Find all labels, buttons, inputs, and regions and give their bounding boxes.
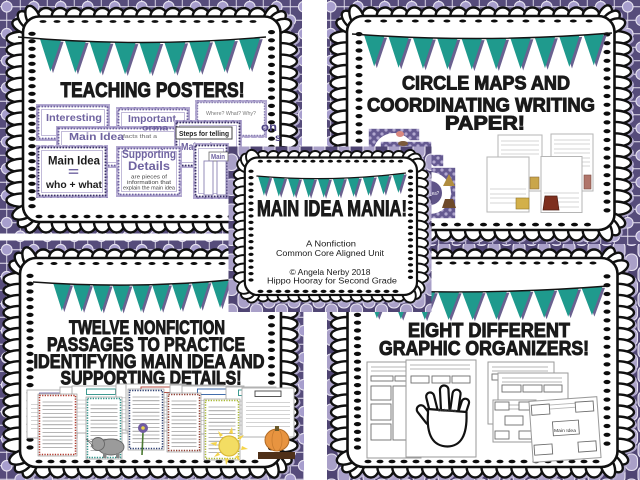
svg-text:CIRCLE MAPS AND: CIRCLE MAPS AND <box>402 73 570 95</box>
svg-text:Main Idea: Main Idea <box>554 428 577 433</box>
svg-text:explain the main idea: explain the main idea <box>123 186 176 192</box>
svg-text:TEACHING POSTERS!: TEACHING POSTERS! <box>61 79 245 102</box>
svg-text:orma: orma <box>142 123 168 133</box>
svg-text:Common Core Aligned Unit: Common Core Aligned Unit <box>276 249 385 258</box>
svg-text:MAIN IDEA MANIA!: MAIN IDEA MANIA! <box>257 196 407 221</box>
svg-text:Interesting: Interesting <box>46 112 102 124</box>
svg-text:Where? What? Why?: Where? What? Why? <box>206 111 256 117</box>
svg-text:A Nonfiction: A Nonfiction <box>306 240 356 249</box>
svg-text:Main: Main <box>211 154 225 161</box>
svg-text:on: on <box>261 120 277 134</box>
svg-text:GRAPHIC ORGANIZERS!: GRAPHIC ORGANIZERS! <box>379 338 589 360</box>
svg-text:PAPER!: PAPER! <box>445 113 525 135</box>
svg-text:who + what: who + what <box>45 179 102 191</box>
svg-text:Hippo Hooray for Second Grade: Hippo Hooray for Second Grade <box>267 277 398 286</box>
svg-text:Details: Details <box>128 159 170 173</box>
svg-text:facts that a: facts that a <box>123 134 157 140</box>
svg-text:s: s <box>275 133 281 144</box>
svg-text:Main Idea: Main Idea <box>69 131 124 143</box>
svg-text:=: = <box>68 164 80 179</box>
svg-text:Steps for telling: Steps for telling <box>179 131 229 138</box>
svg-text:Main Idea: Main Idea <box>438 408 456 413</box>
